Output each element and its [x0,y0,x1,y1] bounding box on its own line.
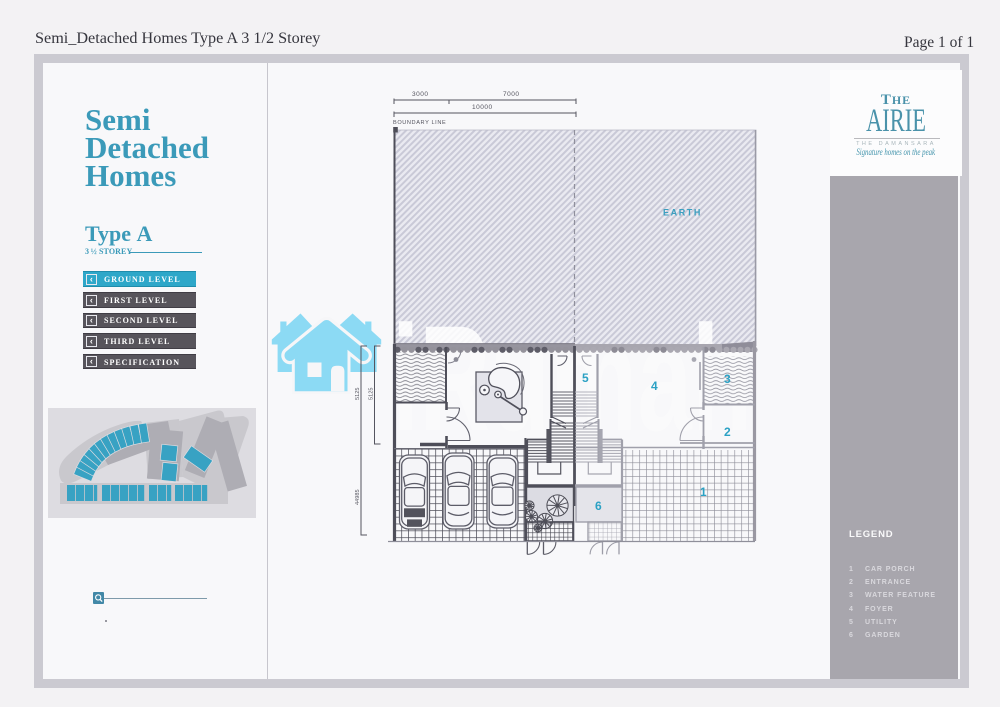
svg-text:5: 5 [582,371,589,385]
svg-text:7000: 7000 [503,91,519,98]
svg-text:EARTH: EARTH [663,208,702,218]
svg-text:10000: 10000 [472,104,493,111]
svg-text:BOUNDARY LINE: BOUNDARY LINE [393,120,446,126]
svg-text:1: 1 [700,485,707,499]
svg-text:5125: 5125 [355,388,361,400]
svg-text:3000: 3000 [412,91,428,98]
svg-text:6: 6 [595,499,602,513]
svg-text:5125: 5125 [369,388,375,400]
svg-text:44985: 44985 [355,489,361,505]
svg-text:2: 2 [724,425,731,439]
svg-text:4: 4 [651,379,658,393]
svg-text:3: 3 [724,372,731,386]
